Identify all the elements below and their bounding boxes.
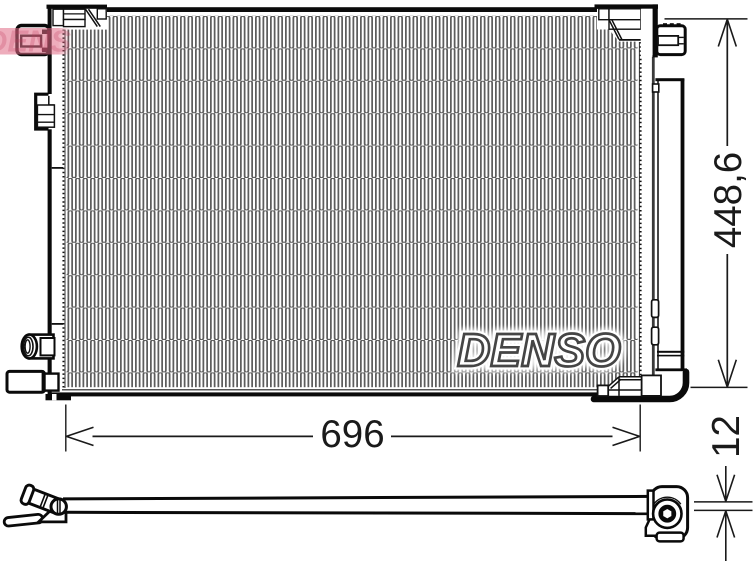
svg-text:696: 696 (320, 413, 384, 456)
svg-text:DENSO: DENSO (457, 324, 621, 376)
svg-text:12: 12 (705, 415, 748, 458)
svg-text:448,6: 448,6 (707, 152, 750, 248)
